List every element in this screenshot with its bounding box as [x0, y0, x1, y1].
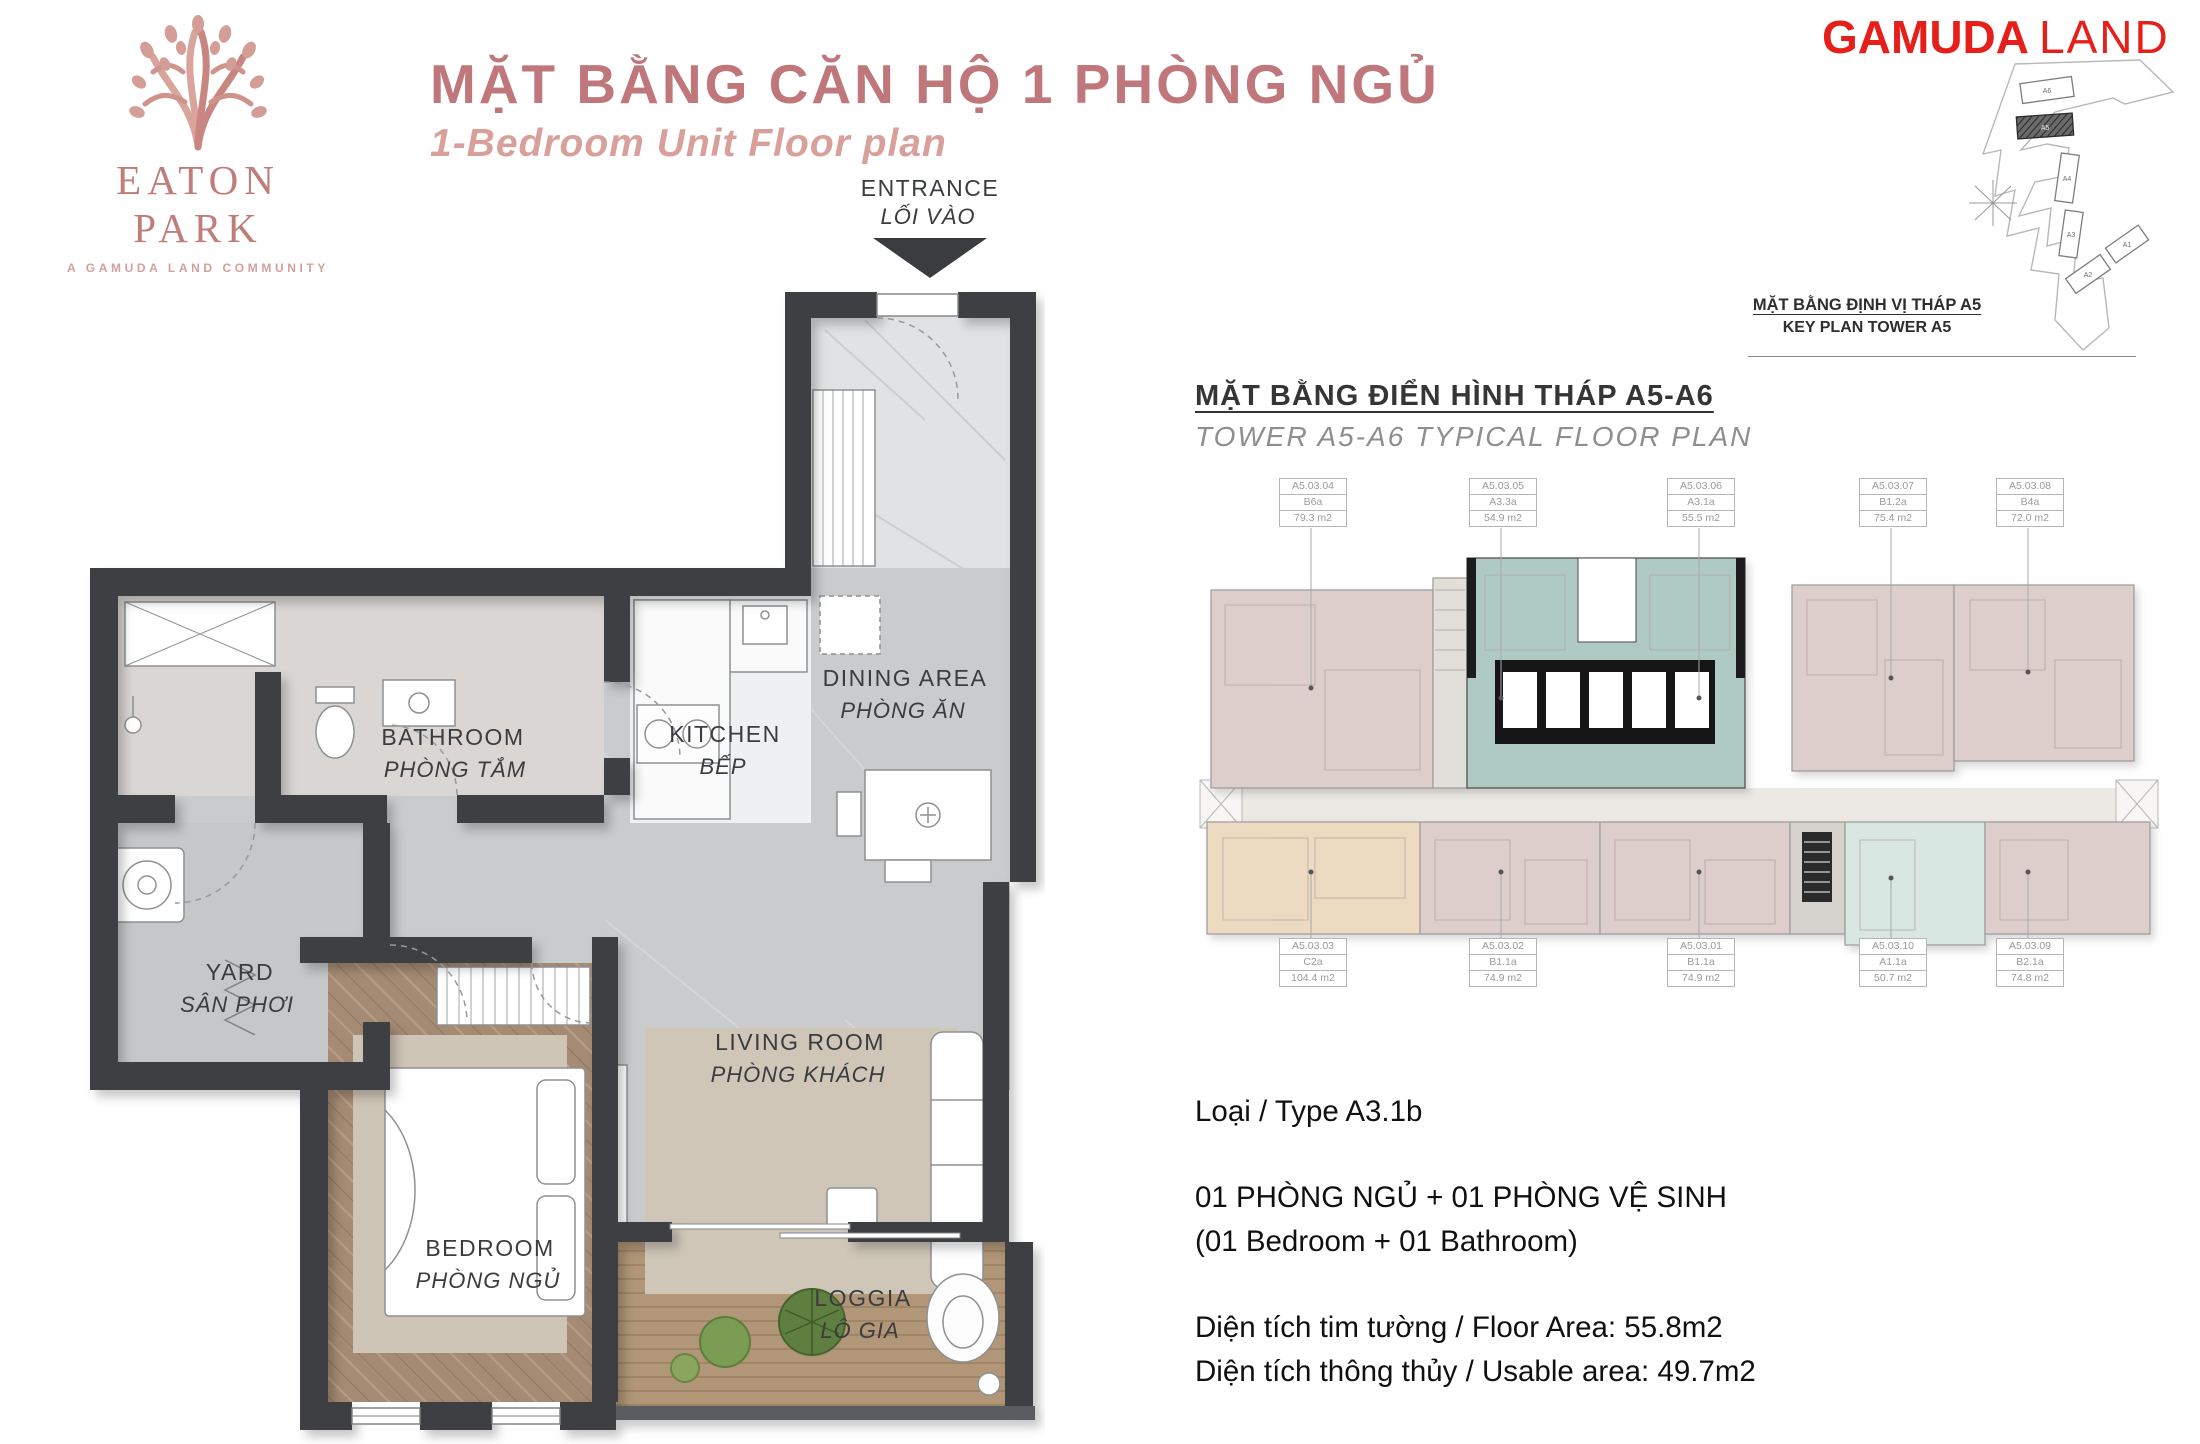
unit-tag-a5-03-01: A5.03.01 B1.1a 74.9 m2 — [1667, 938, 1735, 987]
unit-tag-a5-03-04: A5.03.04 B6a 79.3 m2 — [1279, 478, 1347, 527]
unit-tag-a5-03-07: A5.03.07 B1.2a 75.4 m2 — [1859, 478, 1927, 527]
unit-floor-area: Diện tích tim tường / Floor Area: 55.8m2 — [1195, 1306, 2035, 1350]
page-title-vi: MẶT BẰNG CĂN HỘ 1 PHÒNG NGỦ — [430, 52, 1440, 116]
yard-label-vi: SÂN PHƠI — [180, 992, 294, 1017]
toilet — [316, 706, 354, 758]
site-boundary — [1983, 60, 2173, 350]
unit-config-vi: 01 PHÒNG NGỦ + 01 PHÒNG VỆ SINH — [1195, 1176, 2035, 1220]
egg-chair — [927, 1274, 999, 1362]
gamuda-land-logo: GAMUDALAND — [1822, 10, 2170, 64]
unit-a5-03-04 — [1211, 590, 1433, 788]
unit-a5-03-03 — [1207, 822, 1420, 934]
typical-plan-title-vi: MẶT BẰNG ĐIỂN HÌNH THÁP A5-A6 — [1195, 380, 1752, 413]
unit-tag-a5-03-05: A5.03.05 A3.3a 54.9 m2 — [1469, 478, 1537, 527]
bedroom-label-en: BEDROOM — [425, 1235, 554, 1261]
unit-tag-a5-03-03: A5.03.03 C2a 104.4 m2 — [1279, 938, 1347, 987]
tv-panel — [617, 1065, 627, 1235]
unit-a5-03-07 — [1792, 585, 1954, 771]
unit-floor-plan: ENTRANCE LỐI VÀO — [85, 160, 1045, 1444]
yard-label-en: YARD — [206, 959, 274, 985]
living-label-en: LIVING ROOM — [715, 1029, 885, 1055]
dining-chair — [885, 860, 931, 882]
fridge — [820, 596, 880, 654]
loggia-label-en: LOGGIA — [814, 1285, 911, 1311]
svg-text:A4: A4 — [2063, 176, 2072, 183]
entrance-label-en: ENTRANCE — [861, 175, 1000, 201]
core-notch — [1578, 558, 1636, 642]
key-plan-caption-en: KEY PLAN TOWER A5 — [1742, 319, 1992, 337]
compass-decoration — [1969, 180, 2017, 226]
gamuda-wordmark-light: LAND — [2039, 11, 2170, 63]
entrance-arrow-icon — [873, 238, 987, 278]
svg-text:A1: A1 — [2123, 242, 2132, 249]
typical-floor-plan: A5.03.04 B6a 79.3 m2 A5.03.05 A3.3a 54.9… — [1195, 460, 2165, 1020]
unit-tag-a5-03-02: A5.03.02 B1.1a 74.9 m2 — [1469, 938, 1537, 987]
corridor — [1200, 788, 2155, 822]
svg-text:A5: A5 — [2041, 125, 2050, 132]
typical-plan-title-en: TOWER A5-A6 TYPICAL FLOOR PLAN — [1195, 421, 1752, 453]
elevator-cars — [1503, 672, 1709, 728]
pillow — [537, 1080, 575, 1184]
bathroom-label-en: BATHROOM — [381, 724, 524, 750]
living-label-vi: PHÒNG KHÁCH — [711, 1062, 886, 1087]
key-plan-caption: MẶT BẰNG ĐỊNH VỊ THÁP A5 KEY PLAN TOWER … — [1742, 296, 1992, 337]
side-stool — [978, 1373, 1000, 1395]
header-divider — [1748, 356, 2136, 357]
entrance-label-vi: LỐI VÀO — [880, 204, 975, 229]
toilet-tank — [316, 687, 354, 703]
unit-usable-area: Diện tích thông thủy / Usable area: 49.7… — [1195, 1350, 2035, 1394]
dining-chair — [837, 792, 861, 836]
typical-plan-drawing — [1195, 460, 2165, 1020]
loggia-label-vi: LÔ GIA — [820, 1318, 899, 1343]
svg-text:A2: A2 — [2084, 272, 2093, 279]
kitchen-label-en: KITCHEN — [669, 721, 780, 747]
kitchen-label-vi: BẾP — [699, 754, 746, 779]
unit-a5-03-01 — [1600, 822, 1790, 934]
entrance-annotation: ENTRANCE LỐI VÀO — [861, 175, 1000, 278]
page-title-block: MẶT BẰNG CĂN HỘ 1 PHÒNG NGỦ 1-Bedroom Un… — [430, 52, 1440, 166]
bathroom-label-vi: PHÒNG TẮM — [384, 757, 526, 782]
unit-tag-a5-03-10: A5.03.10 A1.1a 50.7 m2 — [1859, 938, 1927, 987]
typical-plan-title-block: MẶT BẰNG ĐIỂN HÌNH THÁP A5-A6 TOWER A5-A… — [1195, 380, 1752, 453]
svg-text:A3: A3 — [2067, 232, 2076, 239]
unit-tag-a5-03-09: A5.03.09 B2.1a 74.8 m2 — [1996, 938, 2064, 987]
unit-config-en: (01 Bedroom + 01 Bathroom) — [1195, 1220, 2035, 1264]
page: { "brand": { "eaton_name": "EATON PARK",… — [0, 0, 2200, 1444]
shower-head-icon — [125, 717, 141, 733]
unit-tag-a5-03-08: A5.03.08 B4a 72.0 m2 — [1996, 478, 2064, 527]
unit-type-line: Loại / Type A3.1b — [1195, 1090, 2035, 1134]
svg-text:A6: A6 — [2043, 88, 2052, 95]
unit-tag-a5-03-06: A5.03.06 A3.1a 55.5 m2 — [1667, 478, 1735, 527]
eaton-tree-icon — [123, 12, 273, 154]
washing-machine — [110, 848, 184, 922]
gamuda-wordmark-bold: GAMUDA — [1822, 11, 2029, 63]
stair-core — [1433, 578, 1467, 788]
dining-label-en: DINING AREA — [823, 665, 988, 691]
unit-info-block: Loại / Type A3.1b 01 PHÒNG NGỦ + 01 PHÒN… — [1195, 1090, 2035, 1394]
hall-closet — [813, 390, 875, 566]
dining-label-vi: PHÒNG ĂN — [840, 698, 965, 723]
key-plan-buildings — [2016, 76, 2148, 293]
unit-a5-03-08 — [1954, 585, 2134, 761]
sofa — [931, 1032, 983, 1288]
bedroom-label-vi: PHÒNG NGỦ — [416, 1267, 561, 1293]
key-plan-caption-vi: MẶT BẰNG ĐỊNH VỊ THÁP A5 — [1742, 296, 1992, 315]
